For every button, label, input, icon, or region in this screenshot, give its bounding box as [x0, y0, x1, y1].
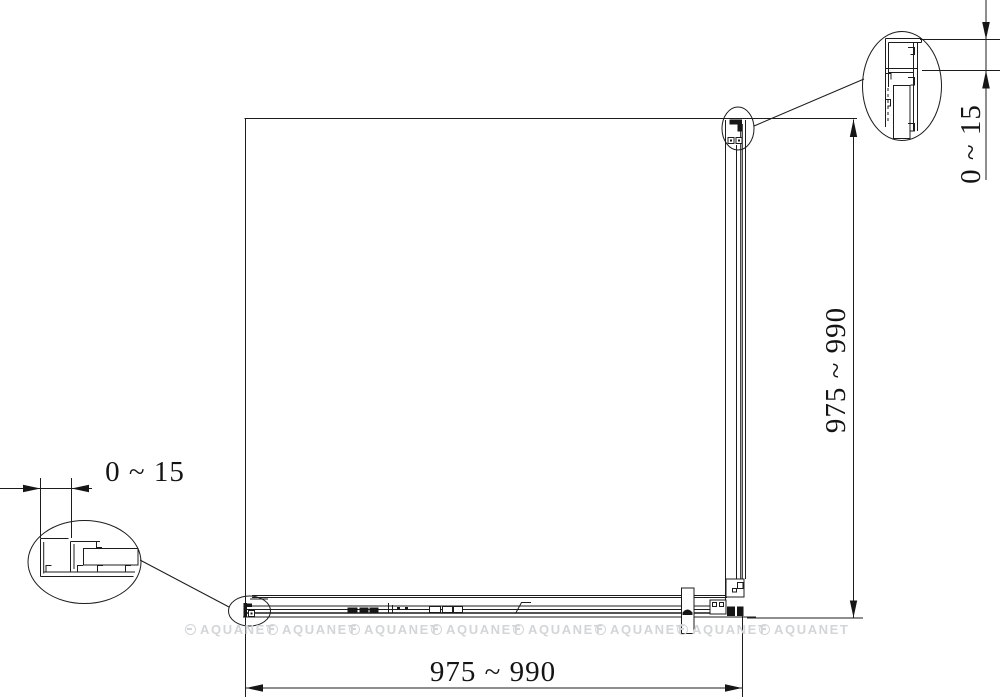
lever-mark — [516, 603, 532, 614]
glide-clip — [430, 607, 441, 613]
right-wall-profile — [726, 120, 746, 601]
roller-clip — [360, 608, 369, 613]
dim-adjust-top-right: 0 ~ 15 — [920, 0, 1000, 184]
enclosure-outline — [245, 118, 858, 697]
arrowhead-left — [246, 684, 263, 692]
arrowhead-bottom — [982, 71, 990, 89]
technical-drawing: 975 ~ 990 975 ~ 990 0 ~ 15 0 ~ 15 — [0, 0, 1000, 699]
profile-top-cap — [730, 120, 738, 125]
detail-view-top-right — [863, 32, 942, 141]
dim-adjust-top-right-label: 0 ~ 15 — [955, 104, 987, 184]
bottom-wall-profile — [243, 596, 756, 618]
glide-clip — [454, 607, 463, 613]
roller-clip — [370, 608, 379, 613]
dim-width-bottom: 975 ~ 990 — [246, 613, 743, 697]
wall-bracket-clamp — [682, 588, 695, 634]
glass-panel-section — [84, 549, 139, 566]
corner-joint-fill — [727, 607, 735, 617]
arrowhead-top — [982, 22, 990, 40]
dim-width-bottom-label: 975 ~ 990 — [430, 656, 556, 688]
dim-adjust-bottom-left: 0 ~ 15 — [0, 456, 185, 538]
arrowhead-top — [850, 120, 857, 138]
arrowhead-bottom — [850, 601, 857, 618]
detail-view-bottom-left — [28, 521, 141, 604]
arrowhead-right — [725, 684, 742, 692]
dim-height-right-label: 975 ~ 990 — [820, 307, 852, 433]
glass-panel-section — [894, 86, 911, 139]
detail-callouts — [140, 79, 864, 626]
arrowhead-right — [72, 485, 90, 493]
dim-height-right: 975 ~ 990 — [747, 120, 863, 619]
glide-clip — [443, 607, 453, 613]
roller-clip — [348, 608, 358, 613]
drawing-svg: 975 ~ 990 975 ~ 990 0 ~ 15 0 ~ 15 — [0, 0, 1000, 699]
arrowhead-left — [23, 485, 41, 493]
leader-line-bottom-left — [140, 560, 229, 607]
dim-adjust-bottom-left-label: 0 ~ 15 — [105, 456, 185, 488]
